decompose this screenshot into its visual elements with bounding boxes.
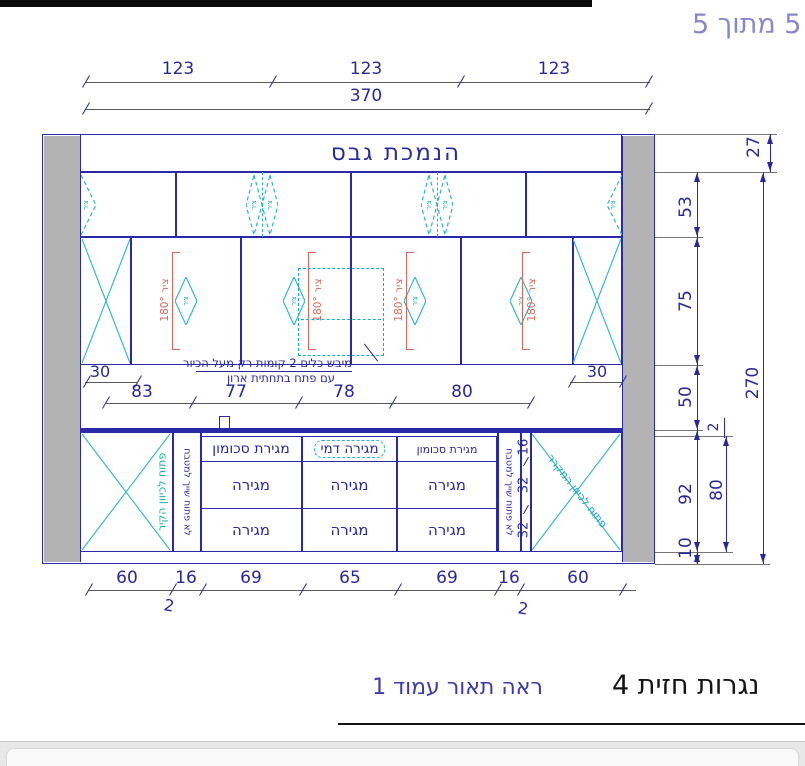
- dummy-drawer-badge: מגירה דמי: [314, 440, 384, 458]
- see-description-note: ראה תאור עמוד 1: [350, 675, 565, 700]
- dim-10: 10: [676, 537, 696, 559]
- countertop-line: [80, 428, 622, 432]
- ceiling-band-label: הנמכת גבס: [241, 140, 461, 166]
- dim-top-123-2: 123: [346, 59, 386, 79]
- arrow-up-icon: [694, 238, 700, 247]
- filler-note-left: לא פתוח שייך למטבח: [182, 448, 193, 536]
- drawer-front: מגירה: [303, 462, 396, 509]
- dish-dryer-shelf-line: [301, 319, 381, 320]
- dim-50: 50: [676, 386, 696, 408]
- dim-bottom-60b: 60: [558, 568, 598, 588]
- dim-83: 83: [122, 382, 162, 402]
- dim-top-123-3: 123: [534, 59, 574, 79]
- dim-78: 78: [324, 382, 364, 402]
- page-number-label: 5 מתוך 5: [692, 9, 801, 40]
- dim-75: 75: [676, 290, 696, 312]
- hinge-label: ציר: [290, 296, 298, 306]
- ceiling-band: הנמכת גבס: [80, 134, 622, 172]
- dim-line-top: [85, 82, 650, 83]
- drawer-front: מגירה: [201, 509, 301, 550]
- dim-bottom-60a: 60: [107, 568, 147, 588]
- door-divider: [130, 237, 132, 365]
- dim-bottom-69a: 69: [231, 568, 271, 588]
- dim-line-30-right: [570, 382, 622, 383]
- arrow-down-icon: [760, 554, 766, 563]
- fixed-panel-x-icon: [82, 239, 130, 363]
- door-divider: [240, 237, 242, 365]
- hinge-180-label: ציר 180°: [159, 278, 171, 321]
- drawer-front-cutlery: מגירת סכומון: [398, 437, 496, 462]
- top-black-bar: [0, 0, 592, 7]
- dim-line-2: [724, 418, 725, 438]
- hinge-swing-bracket: [406, 252, 414, 350]
- drawer-front: מגירה: [398, 509, 496, 550]
- filler-mark-right: 2: [516, 598, 529, 618]
- hinge-label: ציר: [182, 296, 190, 306]
- dim-line-mid: [105, 403, 530, 404]
- drawer-front-dummy: מגירה דמי: [303, 437, 396, 462]
- dim-2: 2: [706, 423, 722, 432]
- cabinet-divider: [497, 432, 499, 552]
- drawing-title: נגרות חזית 4: [612, 670, 759, 701]
- hinge-label: ציר: [266, 200, 274, 210]
- hinge-180-label: ציר 180°: [393, 278, 405, 321]
- arrow-down-icon: [767, 162, 773, 171]
- arrow-up-icon: [694, 366, 700, 375]
- drawer-front: מגירה: [303, 509, 396, 550]
- dim-270: 270: [743, 367, 763, 399]
- title-separator-line: [338, 723, 805, 725]
- hinge-label: ציר: [425, 200, 433, 210]
- arrow-up-icon: [760, 173, 766, 182]
- dim-top-370: 370: [346, 86, 386, 106]
- door-divider: [525, 172, 527, 237]
- door-divider: [350, 172, 352, 237]
- dim-bottom-16a: 16: [166, 568, 206, 588]
- dim-line-270: [763, 172, 764, 564]
- arrow-up-icon: [767, 135, 773, 144]
- arrow-up-icon: [694, 173, 700, 182]
- filler-mark-left: 2: [162, 595, 175, 615]
- dim-drawer-32: 32: [517, 477, 532, 494]
- dim-line-top-total: [85, 109, 650, 110]
- dim-80: 80: [442, 382, 482, 402]
- hinge-label: ציר: [441, 200, 449, 210]
- dim-top-123-1: 123: [158, 59, 198, 79]
- hinge-label: ציר: [250, 200, 258, 210]
- drawer-front: מגירה: [398, 462, 496, 509]
- bottom-ui-strip: [0, 741, 805, 766]
- hinge-label: ציר: [82, 200, 90, 210]
- door-divider: [175, 172, 177, 237]
- dim-77: 77: [216, 382, 256, 402]
- extension-line: [655, 172, 777, 173]
- left-corner-note: פתוח לכיוון הקיר: [156, 453, 169, 531]
- drawer-front-cutlery: מגירת סכומון: [201, 437, 301, 462]
- right-wall: [622, 136, 654, 562]
- dim-80-right: 80: [707, 479, 727, 501]
- drawer-front: מגירה: [201, 462, 301, 509]
- cad-drawing-page: 5 מתוך 5 123 123 123 370 הנמכת גבס ציר צ…: [0, 0, 805, 766]
- bottom-ui-inner-panel: [6, 748, 799, 766]
- dim-drawer-16: 16: [517, 439, 532, 456]
- arrow-down-icon: [723, 542, 729, 551]
- dim-drawer-32b: 32: [517, 522, 532, 539]
- dim-53: 53: [676, 196, 696, 218]
- callout-line1: מיבש כלים 2 קומות רק מעל הכיור: [196, 356, 352, 372]
- cabinet-divider: [172, 432, 174, 552]
- dim-30-right: 30: [582, 362, 612, 381]
- dim-bottom-69b: 69: [427, 568, 467, 588]
- drawer-stack-left: מגירת סכומון מגירה מגירה: [200, 436, 302, 552]
- hinge-swing-bracket: [172, 252, 180, 350]
- filler-note-right: לא פתוח שייך למטבח: [504, 448, 515, 536]
- drawer-stack-middle: מגירה דמי מגירה מגירה: [302, 436, 397, 552]
- dish-dryer-outline: [298, 268, 384, 356]
- dim-27: 27: [744, 136, 764, 158]
- arrow-up-icon: [723, 437, 729, 446]
- left-wall: [44, 136, 81, 562]
- extension-line: [655, 564, 770, 565]
- arrow-down-icon: [694, 227, 700, 236]
- fixed-panel-x-icon: [573, 239, 621, 363]
- extension-line: [655, 134, 777, 135]
- drawer-stack-right: מגירת סכומון מגירה מגירה: [397, 436, 497, 552]
- door-divider: [460, 237, 462, 365]
- dim-92: 92: [676, 483, 696, 505]
- arrow-down-icon: [694, 420, 700, 429]
- hinge-swing-bracket: [522, 252, 530, 350]
- arrow-up-icon: [694, 431, 700, 440]
- hinge-label: ציר: [609, 200, 617, 210]
- dim-bottom-65: 65: [330, 568, 370, 588]
- arrow-down-icon: [694, 355, 700, 364]
